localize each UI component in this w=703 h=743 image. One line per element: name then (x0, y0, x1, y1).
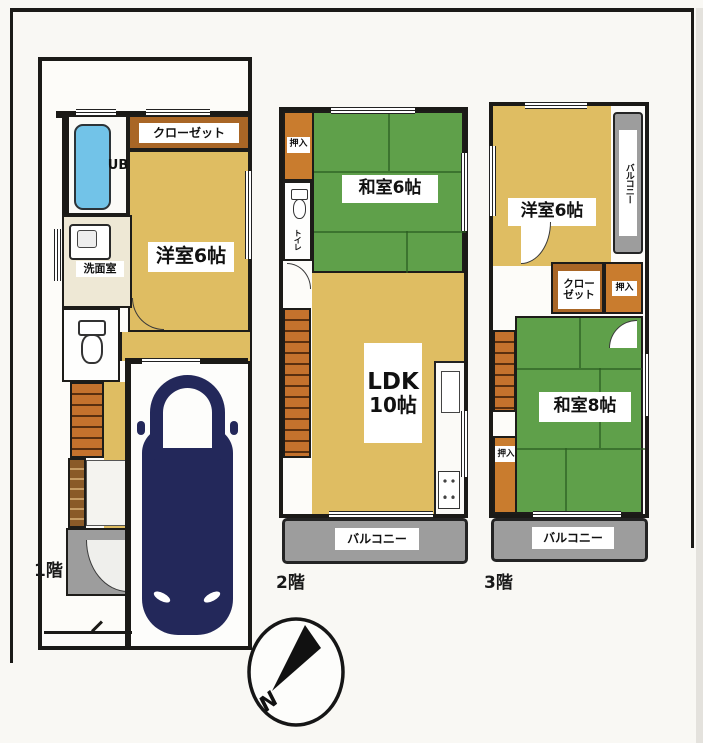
floor1-plan: UB クローゼット 洋室6帖 洗面室 (38, 57, 252, 650)
f2-stairs (283, 308, 311, 458)
floor1-tag: 1階 (34, 556, 63, 581)
floor2-plan: 押入 トイレ 和室6帖 LDK 10帖 (279, 107, 468, 518)
f1-washroom-window (54, 229, 61, 281)
f2-ldk-line2: 10帖 (369, 395, 417, 416)
f2-east-window-kitchen (461, 411, 468, 477)
f1-entrance-door-arc (86, 540, 128, 592)
f2-tatami-line2 (314, 171, 466, 173)
f3-room-oshiire-upper: 押入 (604, 262, 643, 314)
car-mirror-left (137, 421, 145, 435)
f2-north-window (331, 107, 415, 114)
f1-ub-window (76, 109, 116, 116)
kitchen-stove-fixture (438, 471, 460, 509)
f3-balcony-window (533, 511, 621, 518)
f3-west-window (489, 146, 496, 216)
f1-dimension-line (44, 631, 132, 634)
floorplan-page: UB クローゼット 洋室6帖 洗面室 (0, 0, 703, 743)
f3-tatami-line5 (565, 448, 567, 516)
f3-tatami-line2 (579, 318, 581, 368)
f2-toilet-bowl (293, 199, 306, 219)
f3-balcony-label: バルコニー (532, 527, 614, 549)
f3-room-oshiire-lower: 押入 (493, 436, 517, 514)
f2-tatami-line4 (314, 231, 466, 233)
f2-toilet-label: トイレ (289, 221, 305, 257)
f2-balcony-window (329, 511, 433, 518)
f1-shoe-cabinet (68, 458, 86, 528)
floor3-tag: 3階 (484, 568, 513, 593)
f1-washroom-label: 洗面室 (76, 261, 124, 277)
f3-oshiire-upper-label: 押入 (612, 281, 637, 296)
f1-room-closet: クローゼット (128, 115, 250, 150)
f3-room-closet: クロー ゼット (551, 262, 604, 314)
f3-japanese-door-arc (609, 320, 637, 348)
f3-balcony: バルコニー (491, 518, 648, 562)
f3-east-window (642, 354, 649, 416)
f1-room-washroom: 洗面室 (62, 215, 132, 308)
f3-side-balcony-label: バルコニー (619, 130, 637, 236)
f3-oshiire-lower-label: 押入 (495, 446, 517, 462)
f2-east-window-japanese (461, 153, 468, 231)
f1-room-toilet (62, 308, 120, 382)
f3-side-balcony: バルコニー (613, 112, 643, 254)
f2-hall-door-arc (287, 263, 311, 289)
f2-ldk-label: LDK 10帖 (364, 343, 422, 443)
floor2-tag: 2階 (276, 568, 305, 593)
f1-western-label: 洋室6帖 (148, 242, 234, 272)
f1-western-window (245, 171, 252, 259)
f1-entrance-porch (66, 528, 132, 596)
f1-stairs (70, 382, 104, 458)
f1-ub-label: UB (106, 157, 130, 175)
f2-room-japanese: 和室6帖 (312, 111, 464, 273)
f3-room-japanese: 和室8帖 (515, 316, 643, 514)
kitchen-sink-fixture (441, 371, 460, 413)
f2-tatami-line3 (406, 231, 408, 275)
f1-room-ub: UB (62, 115, 128, 215)
f3-north-window (525, 102, 587, 109)
f2-room-ldk: LDK 10帖 (312, 273, 464, 514)
scan-frame-top (10, 8, 694, 12)
scan-frame-left (10, 8, 13, 663)
f2-oshiire-label: 押入 (287, 137, 310, 153)
f2-tatami-line1 (388, 113, 390, 171)
f1-closet-label: クローゼット (139, 123, 239, 143)
sink-bowl (77, 230, 97, 248)
f3-room-western: 洋室6帖 (493, 106, 611, 266)
car-roof-arch (150, 375, 225, 461)
f3-tatami-line1 (517, 368, 645, 370)
f2-room-oshiire: 押入 (283, 111, 314, 181)
f1-room-western: 洋室6帖 (128, 150, 250, 332)
scan-edge-shadow (696, 8, 703, 743)
floor3-plan: 洋室6帖 バルコニー クロー ゼット 押入 押入 (489, 102, 649, 518)
f2-japanese-label: 和室6帖 (342, 175, 438, 203)
compass-icon: N (243, 615, 351, 731)
f1-closet-window (146, 109, 210, 116)
car-mirror-right (230, 421, 238, 435)
f2-ldk-line1: LDK (367, 370, 419, 394)
f1-garage (131, 364, 248, 646)
toilet-bowl-fixture (81, 334, 103, 364)
f1-western-door-arc (132, 298, 164, 330)
f3-closet-label: クロー ゼット (558, 271, 600, 309)
f2-balcony: バルコニー (282, 518, 468, 564)
scan-frame-right (691, 8, 694, 548)
f1-dimension-tick-end (128, 621, 131, 643)
f2-balcony-label: バルコニー (335, 528, 419, 550)
f1-hall (120, 332, 250, 361)
f3-stairs (493, 330, 516, 412)
f3-closet-line2: ゼット (563, 290, 595, 301)
car-icon (142, 375, 233, 635)
f3-western-door-arc (521, 222, 551, 264)
f3-tatami-line3 (517, 448, 645, 450)
f2-room-toilet: トイレ (283, 181, 312, 261)
f2-kitchen (434, 361, 464, 514)
f3-japanese-label: 和室8帖 (539, 392, 631, 422)
